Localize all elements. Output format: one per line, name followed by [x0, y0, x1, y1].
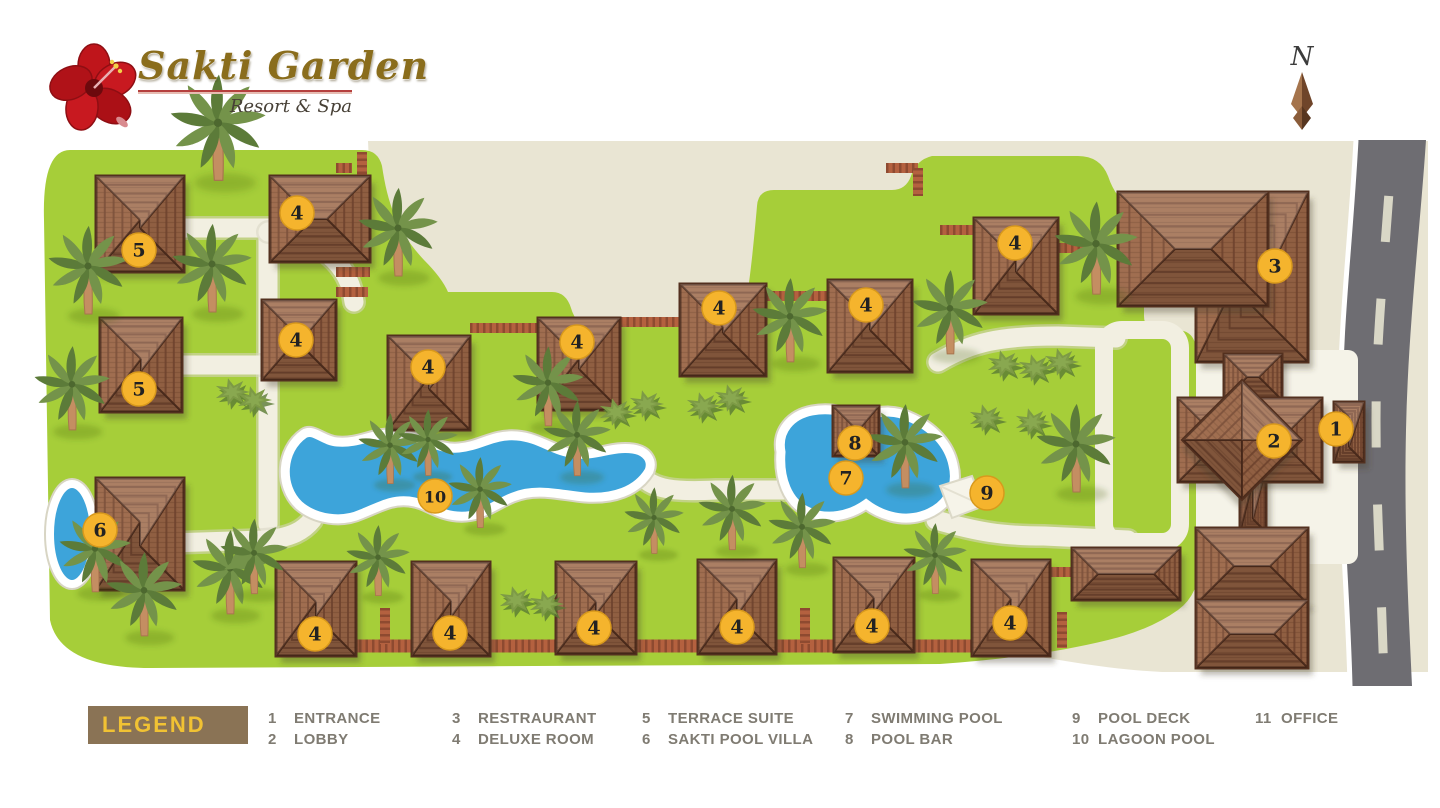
tree-shadow — [1075, 288, 1130, 305]
marker-number: 4 — [308, 624, 321, 646]
tree-shadow — [374, 479, 416, 492]
tree-shadow — [886, 482, 935, 497]
legend-item-number: 8 — [845, 729, 871, 750]
tree-shadow — [211, 608, 260, 623]
marker-number: 5 — [132, 379, 145, 401]
title-underline — [138, 90, 352, 92]
palm-crown-center — [902, 439, 909, 446]
marker-deluxe-room: 4 — [849, 288, 883, 322]
palm-crown-center — [1092, 240, 1099, 247]
legend: LEGEND 1ENTRANCE2LOBBY3RESTRAURANT4DELUX… — [0, 700, 1440, 770]
marker-number: 4 — [1003, 613, 1016, 635]
marker-restaurant: 3 — [1258, 249, 1292, 283]
palm-crown-center — [214, 119, 222, 127]
palm-crown-center — [574, 432, 580, 438]
marker-number: 4 — [421, 357, 434, 379]
legend-item-label: LAGOON POOL — [1098, 729, 1215, 750]
deluxe-room-building — [834, 558, 919, 659]
legend-item-entrance: 1ENTRANCE — [268, 708, 381, 729]
north-indicator: N — [1278, 44, 1326, 132]
palm-crown-center — [729, 506, 735, 512]
marker-number: 4 — [587, 618, 600, 640]
resort-subtitle: Resort & Spa — [138, 96, 352, 117]
legend-item-number: 4 — [452, 729, 478, 750]
resort-site-map: 554444444444444610789321 — [0, 0, 1440, 808]
spa-building — [1196, 600, 1313, 675]
legend-item-restraurant: 3RESTRAURANT — [452, 708, 597, 729]
palm-crown-center — [209, 261, 216, 268]
legend-column: 11OFFICE — [1255, 708, 1338, 729]
legend-item-number: 9 — [1072, 708, 1098, 729]
legend-column: 9POOL DECK10LAGOON POOL — [1072, 708, 1215, 750]
marker-sakti-pool-villa: 6 — [83, 513, 117, 547]
marker-number: 3 — [1268, 256, 1281, 278]
tree-shadow — [192, 306, 244, 322]
palm-crown-center — [932, 552, 938, 558]
marker-deluxe-room: 4 — [298, 617, 332, 651]
marker-entrance: 1 — [1319, 412, 1353, 446]
tree-shadow — [68, 308, 120, 324]
tree-shadow — [194, 173, 256, 192]
tree-shadow — [53, 424, 102, 439]
legend-item-label: SWIMMING POOL — [871, 708, 1003, 729]
marker-swimming-pool: 7 — [829, 461, 863, 495]
office-building — [1072, 548, 1185, 607]
palm-crown-center — [799, 524, 805, 530]
legend-item-label: TERRACE SUITE — [668, 708, 794, 729]
palm-crown-center — [375, 554, 381, 560]
marker-number: 4 — [443, 623, 456, 645]
marker-number: 4 — [712, 298, 725, 320]
palm-crown-center — [1073, 441, 1080, 448]
palm-crown-center — [69, 381, 76, 388]
marker-number: 5 — [132, 240, 145, 262]
tree-shadow — [560, 471, 604, 485]
legend-item-number: 5 — [642, 708, 668, 729]
legend-item-number: 3 — [452, 708, 478, 729]
marker-deluxe-room: 4 — [702, 291, 736, 325]
legend-item-number: 11 — [1255, 708, 1281, 729]
marker-number: 4 — [290, 203, 303, 225]
tree-shadow — [378, 270, 430, 286]
legend-item-label: LOBBY — [294, 729, 349, 750]
tree-shadow — [464, 523, 506, 536]
tree-shadow — [237, 589, 281, 603]
marker-number: 4 — [289, 330, 302, 352]
marker-number: 4 — [1008, 233, 1021, 255]
marker-deluxe-room: 4 — [279, 323, 313, 357]
legend-item-number: 6 — [642, 729, 668, 750]
marker-number: 4 — [570, 332, 583, 354]
marker-lobby: 2 — [1257, 424, 1291, 458]
marker-deluxe-room: 4 — [577, 611, 611, 645]
palm-crown-center — [387, 442, 393, 448]
marker-deluxe-room: 4 — [280, 196, 314, 230]
legend-item-number: 2 — [268, 729, 294, 750]
marker-deluxe-room: 4 — [720, 610, 754, 644]
legend-item-number: 1 — [268, 708, 294, 729]
legend-item-label: SAKTI POOL VILLA — [668, 729, 813, 750]
legend-column: 7SWIMMING POOL8POOL BAR — [845, 708, 1003, 750]
tree-shadow — [771, 356, 820, 371]
palm-crown-center — [651, 515, 656, 520]
marker-terrace-suite: 5 — [122, 372, 156, 406]
tree-shadow — [715, 545, 759, 559]
marker-terrace-suite: 5 — [122, 233, 156, 267]
north-label: N — [1278, 44, 1326, 70]
tree-shadow — [785, 563, 829, 577]
palm-crown-center — [545, 379, 551, 385]
tree-shadow — [1056, 486, 1108, 502]
marker-number: 4 — [859, 295, 872, 317]
legend-item-lagoon-pool: 10LAGOON POOL — [1072, 729, 1215, 750]
legend-item-pool-deck: 9POOL DECK — [1072, 708, 1215, 729]
palm-crown-center — [787, 313, 794, 320]
marker-number: 4 — [865, 616, 878, 638]
palm-crown-center — [141, 587, 148, 594]
legend-item-label: OFFICE — [1281, 708, 1338, 729]
legend-column: 3RESTRAURANT4DELUXE ROOM — [452, 708, 597, 750]
legend-title: LEGEND — [102, 712, 206, 738]
palm-crown-center — [477, 486, 483, 492]
legend-item-office: 11OFFICE — [1255, 708, 1338, 729]
legend-column: 1ENTRANCE2LOBBY — [268, 708, 381, 750]
hibiscus-flower-icon — [44, 38, 144, 138]
marker-pool-deck: 9 — [970, 476, 1004, 510]
legend-item-label: POOL BAR — [871, 729, 953, 750]
legend-item-label: POOL DECK — [1098, 708, 1191, 729]
palm-crown-center — [425, 437, 430, 442]
north-arrow-icon — [1288, 70, 1316, 132]
tree-shadow — [931, 348, 980, 363]
marker-deluxe-room: 4 — [855, 609, 889, 643]
legend-item-swimming-pool: 7SWIMMING POOL — [845, 708, 1003, 729]
tree-shadow — [362, 591, 404, 604]
resort-title: Sakti Garden — [138, 44, 358, 88]
legend-item-number: 10 — [1072, 729, 1098, 750]
marker-number: 10 — [424, 488, 446, 507]
marker-pool-bar: 8 — [838, 426, 872, 460]
marker-number: 4 — [730, 617, 743, 639]
restaurant-building — [1118, 192, 1273, 313]
legend-item-label: RESTRAURANT — [478, 708, 597, 729]
legend-item-pool-bar: 8POOL BAR — [845, 729, 1003, 750]
marker-lagoon-pool: 10 — [418, 479, 452, 513]
marker-number: 8 — [848, 433, 861, 455]
tree-shadow — [639, 549, 678, 561]
legend-item-lobby: 2LOBBY — [268, 729, 381, 750]
marker-deluxe-room: 4 — [560, 325, 594, 359]
marker-deluxe-room: 4 — [998, 226, 1032, 260]
palm-crown-center — [251, 550, 257, 556]
marker-number: 9 — [980, 483, 993, 505]
marker-number: 1 — [1329, 419, 1342, 441]
tree-shadow — [125, 630, 174, 645]
palm-crown-center — [947, 305, 954, 312]
marker-deluxe-room: 4 — [433, 616, 467, 650]
legend-title-box: LEGEND — [88, 706, 248, 744]
legend-item-deluxe-room: 4DELUXE ROOM — [452, 729, 597, 750]
marker-number: 6 — [93, 520, 106, 542]
palm-crown-center — [85, 263, 92, 270]
marker-deluxe-room: 4 — [993, 606, 1027, 640]
palm-crown-center — [395, 225, 402, 232]
legend-item-label: ENTRANCE — [294, 708, 381, 729]
logo-title-block: Sakti Garden Resort & Spa — [138, 44, 358, 117]
legend-item-terrace-suite: 5TERRACE SUITE — [642, 708, 813, 729]
legend-column: 5TERRACE SUITE6SAKTI POOL VILLA — [642, 708, 813, 750]
marker-deluxe-room: 4 — [411, 350, 445, 384]
legend-item-number: 7 — [845, 708, 871, 729]
legend-item-label: DELUXE ROOM — [478, 729, 594, 750]
legend-item-sakti-pool-villa: 6SAKTI POOL VILLA — [642, 729, 813, 750]
resort-map-page: 554444444444444610789321 Sakti Garden Re… — [0, 0, 1440, 808]
marker-number: 2 — [1267, 431, 1280, 453]
tree-shadow — [919, 589, 961, 602]
marker-number: 7 — [839, 468, 852, 490]
